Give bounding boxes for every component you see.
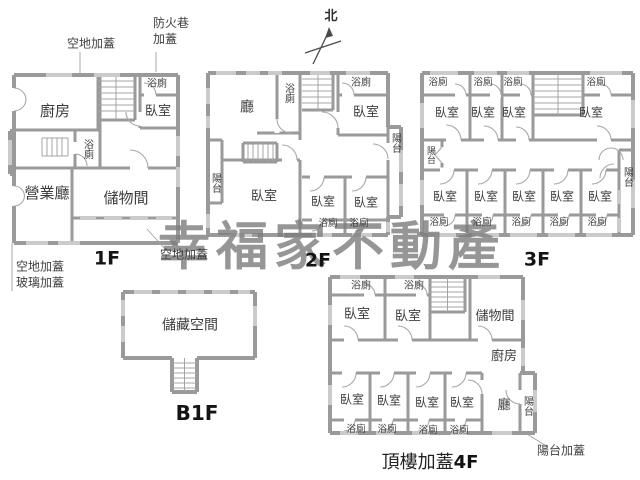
room-label-balcony-left-2f: 陽台 bbox=[210, 173, 221, 193]
room-label-bath-b2-4f: 浴廁 bbox=[377, 425, 396, 435]
north-arrow-icon bbox=[305, 27, 341, 64]
floor-label-4f-code: 4F bbox=[454, 452, 479, 473]
room-label-bath-b1-2f: 浴廁 bbox=[318, 219, 337, 229]
room-label-bath-b1-3f: 浴廁 bbox=[429, 218, 448, 228]
floor-label-3f: 3F bbox=[524, 250, 550, 271]
room-label-bedroom-t1-4f: 臥室 bbox=[344, 308, 370, 322]
room-label-bedroom-b3-3f: 臥室 bbox=[512, 190, 536, 203]
floor-label-4f-prefix: 頂樓加蓋 bbox=[382, 452, 454, 473]
room-label-storage-1f: 儲物間 bbox=[103, 190, 148, 207]
room-label-bedroom-b2-3f: 臥室 bbox=[474, 190, 498, 203]
room-label-bath-top-1f: 浴廁 bbox=[147, 79, 167, 90]
annotation-balcony-cover: 陽台加蓋 bbox=[537, 444, 585, 457]
room-label-bedroom-t3-3f: 臥室 bbox=[502, 106, 526, 119]
room-label-bath-b5-3f: 浴廁 bbox=[587, 218, 606, 228]
annotation-open-top: 空地加蓋 bbox=[67, 37, 115, 50]
room-label-bath-t3-3f: 浴廁 bbox=[503, 78, 522, 88]
floor-label-b1f: B1F bbox=[176, 402, 219, 424]
room-label-bath-b4-4f: 浴廁 bbox=[449, 426, 468, 436]
annotation-glass-bottom-left: 玻璃加蓋 bbox=[16, 276, 64, 289]
room-label-bath-b2-2f: 浴廁 bbox=[349, 219, 368, 229]
room-label-bath-tr-2f: 浴廁 bbox=[351, 78, 371, 89]
room-label-balcony-4f: 陽台 bbox=[522, 396, 533, 416]
room-label-bedroom-b1-3f: 臥室 bbox=[433, 190, 457, 203]
room-label-bedroom-t4-3f: 臥室 bbox=[579, 106, 603, 119]
room-label-bath-b1-4f: 浴廁 bbox=[346, 425, 365, 435]
room-label-balcony-right-3f: 陽台 bbox=[622, 167, 633, 187]
room-label-bath-v-2f: 浴廁 bbox=[283, 83, 294, 103]
floor-label-2f: 2F bbox=[305, 251, 331, 272]
room-label-bedroom-main-2f: 臥室 bbox=[251, 190, 277, 204]
north-label: 北 bbox=[324, 10, 337, 24]
room-label-bath-mid-1f: 浴廁 bbox=[82, 139, 93, 159]
room-label-bedroom-t2-4f: 臥室 bbox=[395, 310, 421, 324]
room-label-bedroom-t2-3f: 臥室 bbox=[471, 106, 495, 119]
annotation-firelane: 防火巷 加蓋 bbox=[153, 15, 189, 47]
room-label-kitchen-4f: 廚房 bbox=[491, 350, 517, 364]
room-label-bedroom-b2-4f: 臥室 bbox=[377, 394, 401, 407]
room-label-bath-t4-3f: 浴廁 bbox=[586, 78, 605, 88]
room-label-bedroom-b4-3f: 臥室 bbox=[550, 190, 574, 203]
annotation-open-bottom-right: 空地加蓋 bbox=[160, 248, 208, 261]
room-label-bedroom-b1-4f: 臥室 bbox=[340, 393, 364, 406]
floorplan-page: 幸福家不動產 北 空地加蓋 防火巷 加蓋 廚房 浴廁 臥室 浴廁 營業廳 儲物間… bbox=[0, 0, 640, 480]
annotation-open-bottom-left: 空地加蓋 bbox=[16, 260, 64, 273]
room-label-bedroom-b4-4f: 臥室 bbox=[450, 396, 474, 409]
watermark-text: 幸福家不動產 bbox=[158, 205, 506, 280]
room-label-bath-t1-3f: 浴廁 bbox=[428, 78, 447, 88]
room-label-bath-b3-4f: 浴廁 bbox=[418, 426, 437, 436]
room-label-balcony-right-2f: 陽台 bbox=[390, 133, 401, 153]
room-label-balcony-left-3f: 陽台 bbox=[424, 146, 434, 164]
room-label-hall-4f: 廳 bbox=[497, 399, 510, 413]
room-label-bath-b4-3f: 浴廁 bbox=[549, 218, 568, 228]
room-label-kitchen-1f: 廚房 bbox=[40, 103, 70, 120]
room-label-bath-b2-3f: 浴廁 bbox=[472, 218, 491, 228]
floorplan-b1f-walls bbox=[123, 292, 255, 392]
room-label-bedroom-b1-2f: 臥室 bbox=[311, 195, 335, 208]
room-label-hall-2f: 廳 bbox=[240, 100, 254, 115]
room-label-storage-4f: 儲物間 bbox=[475, 310, 514, 324]
room-label-bedroom-b2-2f: 臥室 bbox=[354, 196, 378, 209]
room-label-bedroom-b3-4f: 臥室 bbox=[415, 396, 439, 409]
room-label-bath-t2-3f: 浴廁 bbox=[473, 78, 492, 88]
room-label-bedroom-1f: 臥室 bbox=[145, 105, 171, 119]
floor-label-4f: 頂樓加蓋4F bbox=[382, 448, 479, 474]
room-label-bedroom-tr-2f: 臥室 bbox=[353, 106, 379, 120]
room-label-bedroom-b5-3f: 臥室 bbox=[588, 190, 612, 203]
room-label-sales-hall-1f: 營業廳 bbox=[24, 185, 69, 202]
room-label-bath-t2-4f: 浴廁 bbox=[404, 281, 424, 292]
room-label-bath-t1-4f: 浴廁 bbox=[351, 281, 371, 292]
room-label-bedroom-t1-3f: 臥室 bbox=[435, 106, 459, 119]
room-label-storage-space-b1f: 儲藏空間 bbox=[162, 318, 218, 333]
room-label-bath-b3-3f: 浴廁 bbox=[511, 218, 530, 228]
floor-label-1f: 1F bbox=[94, 249, 120, 270]
